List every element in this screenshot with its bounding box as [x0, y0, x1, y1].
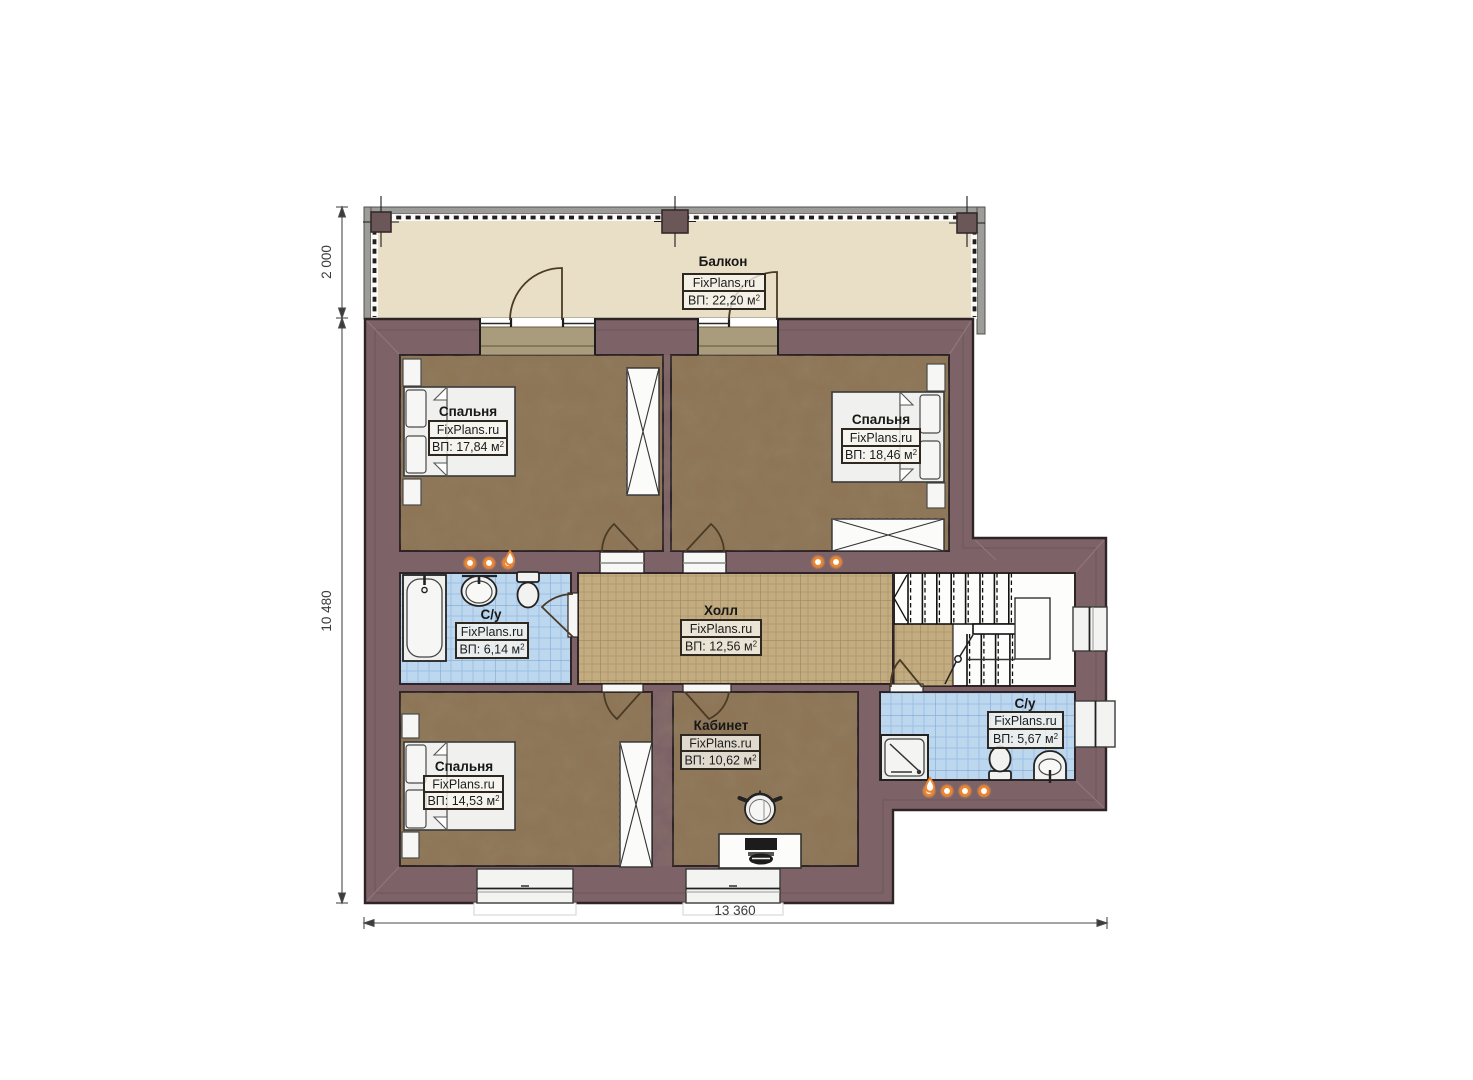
svg-text:FixPlans.ru: FixPlans.ru — [437, 423, 500, 437]
svg-text:FixPlans.ru: FixPlans.ru — [689, 737, 752, 751]
svg-text:ВП: 17,84 м2: ВП: 17,84 м2 — [432, 440, 505, 454]
svg-text:ВП: 6,14 м2: ВП: 6,14 м2 — [459, 643, 525, 657]
svg-text:Балкон: Балкон — [699, 254, 748, 269]
svg-text:ВП: 14,53 м2: ВП: 14,53 м2 — [427, 794, 500, 808]
svg-text:Спальня: Спальня — [852, 412, 910, 427]
svg-text:13 360: 13 360 — [714, 903, 755, 918]
svg-text:FixPlans.ru: FixPlans.ru — [461, 625, 524, 639]
svg-text:Кабинет: Кабинет — [694, 718, 749, 733]
svg-text:ВП: 22,20 м2: ВП: 22,20 м2 — [688, 294, 761, 308]
svg-text:FixPlans.ru: FixPlans.ru — [432, 778, 495, 792]
svg-text:Спальня: Спальня — [439, 404, 497, 419]
svg-text:10 480: 10 480 — [319, 590, 334, 631]
svg-text:FixPlans.ru: FixPlans.ru — [690, 622, 753, 636]
svg-text:С/у: С/у — [480, 607, 502, 622]
svg-text:ВП: 5,67 м2: ВП: 5,67 м2 — [993, 732, 1059, 746]
svg-text:Холл: Холл — [704, 603, 738, 618]
svg-text:С/у: С/у — [1014, 696, 1036, 711]
svg-text:FixPlans.ru: FixPlans.ru — [693, 276, 756, 290]
svg-text:FixPlans.ru: FixPlans.ru — [994, 714, 1057, 728]
svg-text:Спальня: Спальня — [435, 759, 493, 774]
svg-text:ВП: 18,46 м2: ВП: 18,46 м2 — [845, 448, 918, 462]
svg-text:ВП: 12,56 м2: ВП: 12,56 м2 — [685, 640, 758, 654]
svg-text:2 000: 2 000 — [319, 245, 334, 279]
svg-text:FixPlans.ru: FixPlans.ru — [850, 431, 913, 445]
svg-text:ВП: 10,62 м2: ВП: 10,62 м2 — [684, 754, 757, 768]
